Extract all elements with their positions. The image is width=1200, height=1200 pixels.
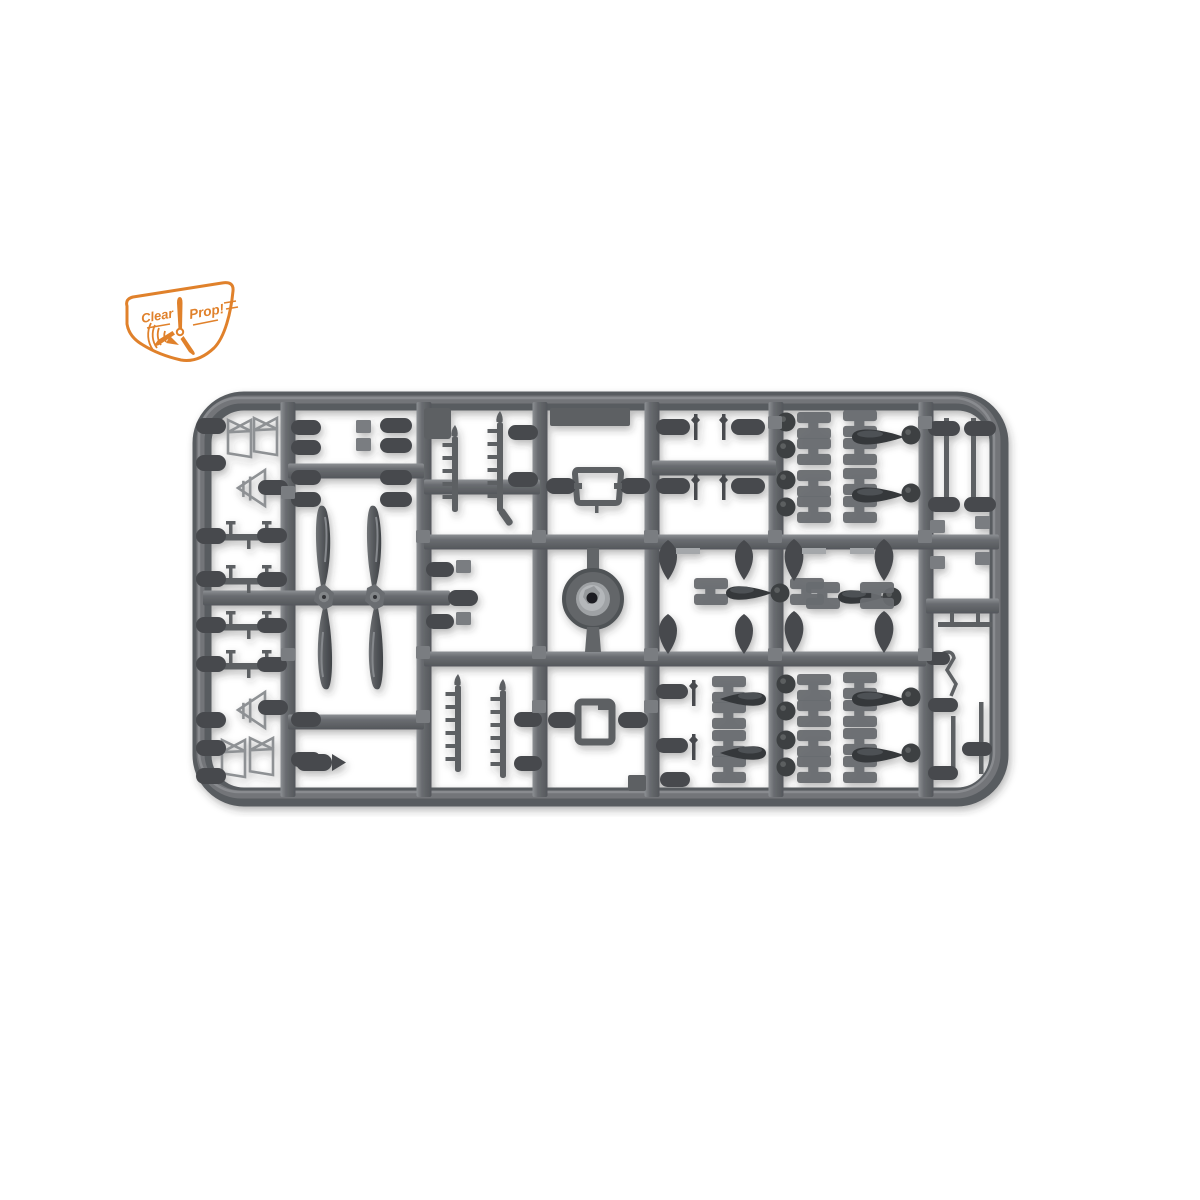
svg-text:Clear: Clear <box>140 305 176 326</box>
svg-text:Prop!: Prop! <box>188 301 226 322</box>
